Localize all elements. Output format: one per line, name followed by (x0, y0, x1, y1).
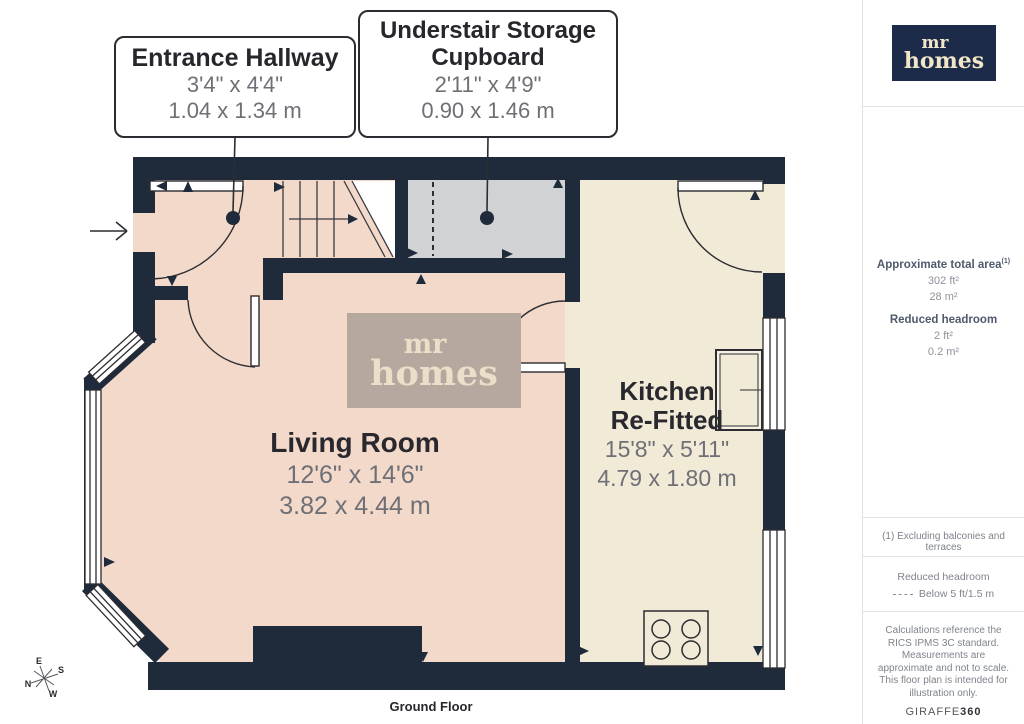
chimney-breast (253, 626, 422, 667)
total-area-footnote-ref: (1) (1002, 258, 1011, 265)
compass-w: W (49, 689, 58, 699)
brand-logo: mr homes (892, 25, 996, 81)
watermark-line2: homes (347, 357, 521, 390)
footnote-text: (1) Excluding balconies and terraces (863, 518, 1024, 553)
room-dims-imperial: 12'6" x 14'6" (205, 460, 505, 491)
headroom-heading: Reduced headroom (863, 313, 1024, 328)
callout-dims-imperial: 2'11" x 4'9" (364, 72, 612, 98)
disclaimer-text: Calculations reference the RICS IPMS 3C … (863, 612, 1024, 700)
callout-title: Understair Storage Cupboard (364, 18, 612, 72)
compass-s: S (58, 665, 64, 675)
hallway-callout-dot (226, 211, 240, 225)
giraffe360-brand: GIRAFFE360 (863, 706, 1024, 718)
headroom-metric: 0.2 m² (863, 344, 1024, 360)
room-dims-imperial: 15'8" x 5'11" (586, 435, 748, 464)
kitchen-window-lower (763, 530, 785, 668)
callout-understair-cupboard: Understair Storage Cupboard 2'11" x 4'9"… (358, 10, 618, 138)
stove-hob (644, 611, 708, 666)
room-label-kitchen: Kitchen Re-Fitted 15'8" x 5'11" 4.79 x 1… (586, 377, 748, 493)
bay-window-left (85, 390, 101, 584)
total-area-heading: Approximate total area(1) (863, 254, 1024, 273)
callout-dims-metric: 1.04 x 1.34 m (120, 98, 350, 124)
dashed-line-icon (893, 594, 913, 595)
sidebar: mr homes Approximate total area(1) 302 f… (862, 0, 1024, 724)
total-area-metric: 28 m² (863, 289, 1024, 305)
watermark-logo: mr homes (347, 313, 521, 408)
headroom-imperial: 2 ft² (863, 328, 1024, 344)
brand-logo-line2: homes (892, 51, 996, 71)
legend-label: Below 5 ft/1.5 m (919, 588, 994, 600)
wall-divider-lower (565, 368, 580, 662)
total-area-imperial: 302 ft² (863, 273, 1024, 289)
cupboard-callout-dot (480, 211, 494, 225)
room-label-living-room: Living Room 12'6" x 14'6" 3.82 x 4.44 m (205, 426, 505, 522)
wall-cupboard-bottom (270, 258, 580, 273)
callout-entrance-hallway: Entrance Hallway 3'4" x 4'4" 1.04 x 1.34… (114, 36, 356, 138)
wall-cupboard-left (395, 180, 408, 258)
giraffe360-suffix: 360 (960, 706, 981, 718)
callout-dims-imperial: 3'4" x 4'4" (120, 72, 350, 98)
wall-divider-upper (565, 180, 580, 302)
watermark-line1: mr (338, 332, 512, 357)
callout-title: Entrance Hallway (120, 44, 350, 72)
room-name-line2: Re-Fitted (586, 406, 748, 435)
floorplan-page: E S N W Entrance Hallway 3'4" x 4'4" 1.0… (0, 0, 1024, 724)
footnote-section: (1) Excluding balconies and terraces (863, 518, 1024, 557)
disclaimer-section: Calculations reference the RICS IPMS 3C … (863, 612, 1024, 724)
legend-section: Reduced headroom Below 5 ft/1.5 m (863, 557, 1024, 612)
compass-icon: E S N W (25, 656, 64, 699)
room-dims-metric: 3.82 x 4.44 m (205, 491, 505, 522)
legend-row: Below 5 ft/1.5 m (863, 588, 1024, 600)
callout-dims-metric: 0.90 x 1.46 m (364, 98, 612, 124)
wall-top (133, 157, 785, 180)
kitchen-window-upper (763, 318, 785, 430)
total-area-heading-text: Approximate total area (877, 259, 1002, 271)
room-name: Living Room (205, 426, 505, 460)
compass-n: N (25, 679, 32, 689)
brand-logo-line1: mr (883, 36, 987, 51)
room-name-line1: Kitchen (586, 377, 748, 406)
room-dims-metric: 4.79 x 1.80 m (586, 464, 748, 493)
compass-e: E (36, 656, 42, 666)
sidebar-logo-section: mr homes (863, 0, 1024, 107)
kitchen-doorway-opening (565, 302, 580, 368)
legend-title: Reduced headroom (863, 557, 1024, 583)
entrance-opening (133, 213, 155, 252)
giraffe360-name: GIRAFFE (905, 706, 960, 718)
wall-hall-stub (133, 286, 188, 300)
entry-arrow-icon (90, 222, 127, 240)
floor-name-label: Ground Floor (0, 699, 862, 714)
area-summary-section: Approximate total area(1) 302 ft² 28 m² … (863, 107, 1024, 518)
kitchen-exterior-door-opening (763, 184, 785, 273)
